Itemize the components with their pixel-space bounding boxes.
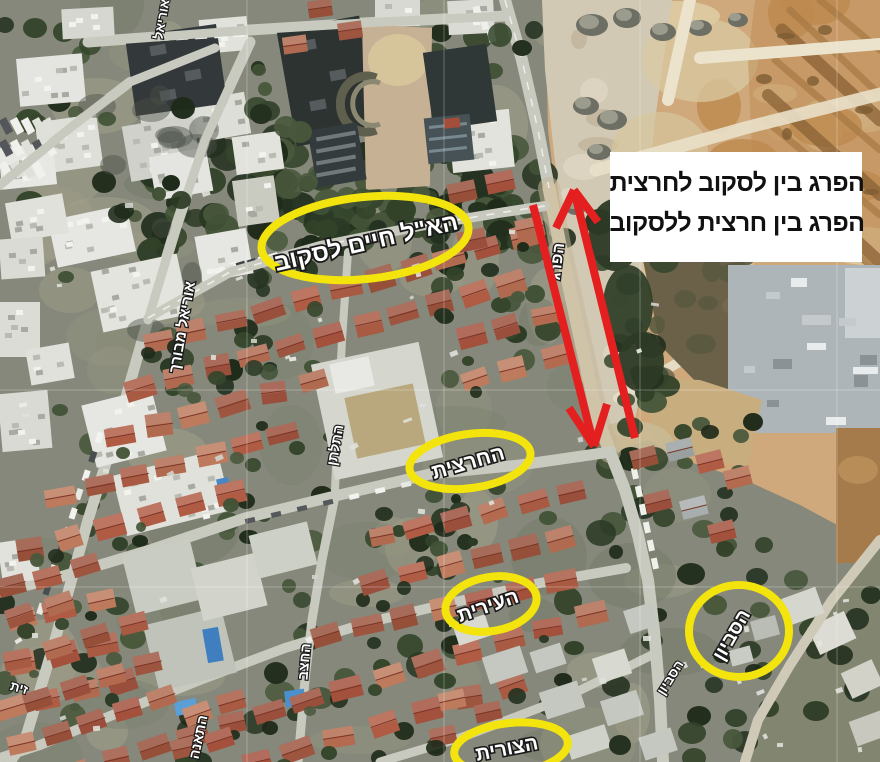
svg-text:הפרג בין חרצית ללסקוב: הפרג בין חרצית ללסקוב: [610, 209, 865, 237]
svg-text:החצב: החצב: [294, 643, 313, 681]
svg-text:הפרג בין לסקוב לחרצית: הפרג בין לסקוב לחרצית: [610, 169, 865, 197]
